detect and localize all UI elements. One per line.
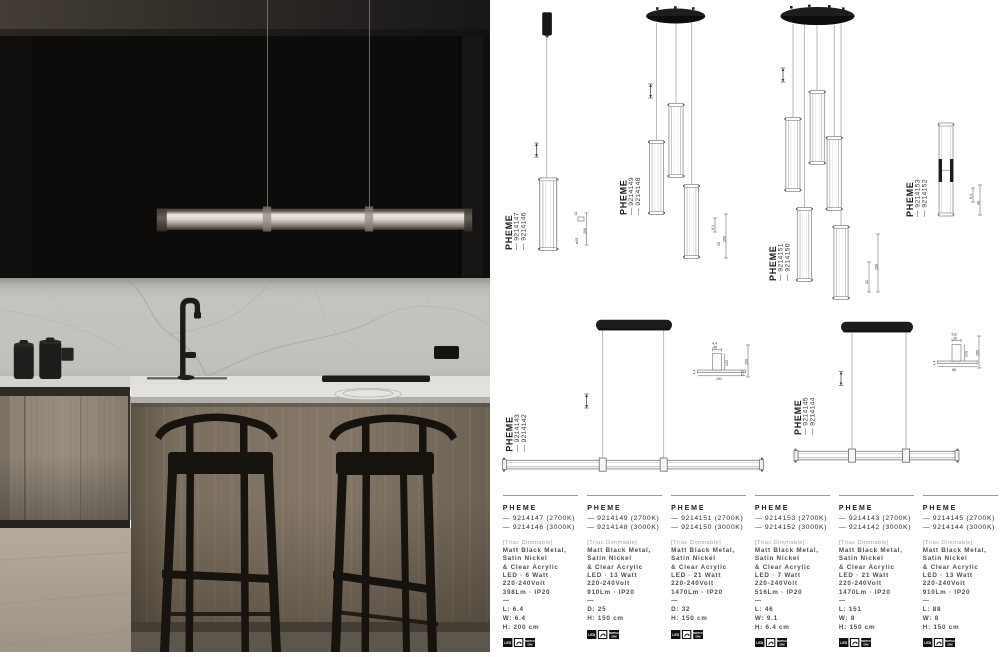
svg-text:DIM: DIM bbox=[696, 634, 702, 638]
svg-text:— 9214145: — 9214145 bbox=[802, 397, 809, 435]
svg-text:DIM: DIM bbox=[779, 643, 785, 647]
svg-text:25: 25 bbox=[717, 242, 721, 246]
svg-text:9,1: 9,1 bbox=[969, 194, 973, 199]
svg-text:151: 151 bbox=[716, 377, 722, 381]
svg-text:DIM: DIM bbox=[863, 643, 869, 647]
svg-text:150: 150 bbox=[744, 359, 748, 365]
svg-text:— 9214151: — 9214151 bbox=[778, 243, 785, 281]
svg-text:LED: LED bbox=[504, 641, 511, 645]
svg-text:— 9214153: — 9214153 bbox=[915, 179, 922, 217]
svg-text:LED: LED bbox=[756, 641, 763, 645]
svg-text:ø45: ø45 bbox=[575, 238, 579, 244]
svg-text:88: 88 bbox=[952, 368, 956, 372]
svg-text:LED: LED bbox=[924, 641, 931, 645]
svg-text:4,4: 4,4 bbox=[933, 361, 937, 366]
svg-text:— 9214142: — 9214142 bbox=[521, 414, 528, 452]
svg-text:150: 150 bbox=[875, 264, 879, 270]
svg-text:4,4: 4,4 bbox=[712, 342, 717, 346]
svg-text:200: 200 bbox=[583, 228, 587, 234]
svg-text:5,8: 5,8 bbox=[952, 333, 957, 337]
svg-text:DIM: DIM bbox=[947, 643, 953, 647]
svg-text:— 9214148: — 9214148 bbox=[635, 177, 642, 215]
svg-text:32: 32 bbox=[574, 212, 578, 216]
svg-text:LED: LED bbox=[672, 633, 679, 637]
svg-text:143: 143 bbox=[725, 360, 729, 366]
svg-text:— 9214149: — 9214149 bbox=[628, 177, 635, 215]
svg-text:— 9214143: — 9214143 bbox=[514, 414, 521, 452]
svg-text:46: 46 bbox=[977, 201, 981, 205]
svg-text:32: 32 bbox=[865, 280, 869, 284]
svg-text:DIM: DIM bbox=[527, 643, 533, 647]
svg-text:6,1: 6,1 bbox=[711, 225, 715, 230]
svg-text:— 9214147: — 9214147 bbox=[514, 212, 521, 250]
svg-text:46: 46 bbox=[713, 345, 717, 349]
svg-text:30: 30 bbox=[953, 336, 957, 340]
svg-text:— 9214144: — 9214144 bbox=[810, 397, 817, 435]
svg-text:— 9214150: — 9214150 bbox=[785, 243, 792, 281]
svg-text:150: 150 bbox=[723, 236, 727, 242]
svg-text:150: 150 bbox=[975, 350, 979, 356]
svg-text:— 9214146: — 9214146 bbox=[521, 212, 528, 250]
svg-text:DIM: DIM bbox=[612, 634, 618, 638]
svg-text:LED: LED bbox=[588, 633, 595, 637]
svg-text:LED: LED bbox=[840, 641, 847, 645]
svg-text:4,4: 4,4 bbox=[693, 370, 697, 375]
svg-text:— 9214152: — 9214152 bbox=[922, 179, 929, 217]
svg-text:5,6: 5,6 bbox=[740, 371, 744, 376]
svg-text:143: 143 bbox=[964, 351, 968, 357]
